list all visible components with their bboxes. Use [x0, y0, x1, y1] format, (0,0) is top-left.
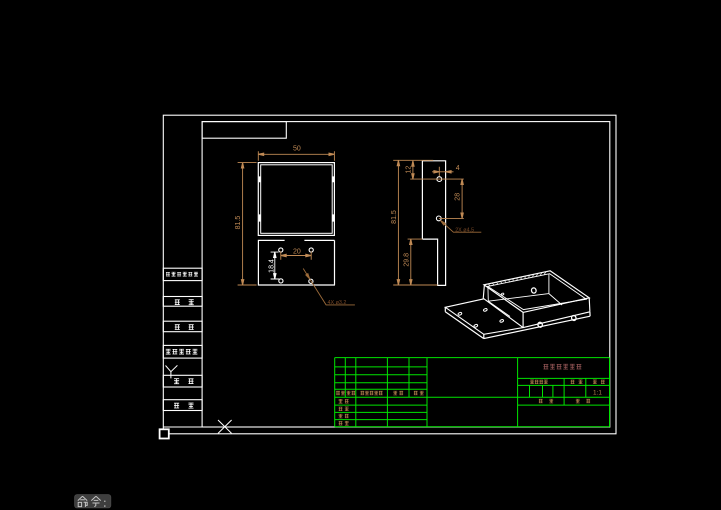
svg-text:81.5: 81.5 — [235, 216, 242, 230]
svg-text:2X ø4.5: 2X ø4.5 — [455, 227, 474, 233]
svg-text:81.5: 81.5 — [391, 210, 398, 224]
svg-text:4: 4 — [456, 165, 460, 172]
svg-text:50: 50 — [293, 146, 301, 153]
svg-text:20: 20 — [293, 248, 301, 255]
svg-text:12: 12 — [406, 166, 413, 174]
svg-text:18.4: 18.4 — [269, 259, 276, 273]
svg-text:4X ø3.2: 4X ø3.2 — [328, 300, 347, 306]
svg-text:1:1: 1:1 — [593, 389, 602, 396]
svg-text:28: 28 — [455, 193, 462, 201]
svg-text:29.8: 29.8 — [403, 253, 410, 267]
